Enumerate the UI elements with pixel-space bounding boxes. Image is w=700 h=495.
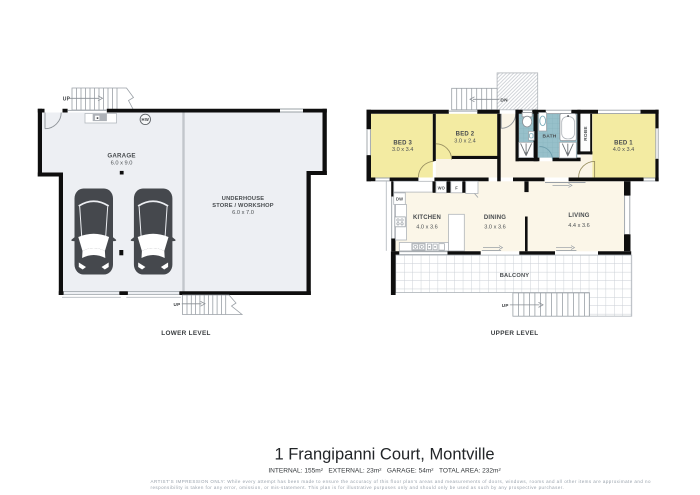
svg-text:responsibility is taken for an: responsibility is taken for any error, o… (151, 485, 565, 490)
svg-text:DW: DW (396, 197, 403, 202)
svg-text:6.0 x 9.0: 6.0 x 9.0 (111, 160, 133, 166)
svg-text:DN: DN (500, 98, 508, 104)
svg-text:4.0 x 3.4: 4.0 x 3.4 (613, 147, 634, 153)
svg-text:BATH: BATH (542, 134, 556, 140)
svg-text:STORE / WORKSHOP: STORE / WORKSHOP (212, 203, 274, 209)
svg-text:GARAGE: GARAGE (107, 152, 135, 159)
svg-text:ROBE: ROBE (583, 126, 589, 141)
svg-text:INTERNAL: 155m² EXTERNAL: 23: INTERNAL: 155m² EXTERNAL: 23m² GARAGE: 5… (268, 468, 501, 475)
svg-text:LOWER LEVEL: LOWER LEVEL (161, 330, 210, 337)
svg-text:BED 3: BED 3 (393, 140, 412, 146)
svg-text:BED 2: BED 2 (456, 132, 475, 138)
svg-text:ARTIST’S IMPRESSION ONLY: Whil: ARTIST’S IMPRESSION ONLY: While every at… (151, 479, 651, 484)
svg-text:UNDERHOUSE: UNDERHOUSE (222, 196, 264, 202)
svg-text:LIVING: LIVING (568, 213, 589, 219)
svg-text:DINING: DINING (484, 215, 506, 221)
svg-text:UP: UP (502, 303, 509, 308)
svg-text:BED 1: BED 1 (614, 140, 633, 146)
svg-text:WO: WO (438, 185, 446, 190)
svg-text:3.0 x 3.6: 3.0 x 3.6 (484, 225, 505, 231)
svg-text:UP: UP (174, 302, 181, 307)
svg-text:F: F (455, 185, 458, 190)
svg-text:HW: HW (142, 117, 150, 122)
svg-text:BALCONY: BALCONY (500, 273, 530, 279)
svg-text:4.0 x 3.6: 4.0 x 3.6 (416, 225, 437, 231)
svg-text:UP: UP (63, 96, 71, 102)
svg-text:6.0 x 7.0: 6.0 x 7.0 (232, 210, 254, 216)
svg-text:3.0 x 2.4: 3.0 x 2.4 (454, 138, 475, 144)
svg-text:1 Frangipanni Court, Montville: 1 Frangipanni Court, Montville (274, 446, 494, 464)
svg-text:KITCHEN: KITCHEN (413, 215, 441, 221)
svg-text:3.0 x 3.4: 3.0 x 3.4 (392, 147, 413, 153)
svg-text:4.4 x 3.6: 4.4 x 3.6 (568, 223, 589, 229)
svg-text:UPPER LEVEL: UPPER LEVEL (491, 330, 539, 337)
